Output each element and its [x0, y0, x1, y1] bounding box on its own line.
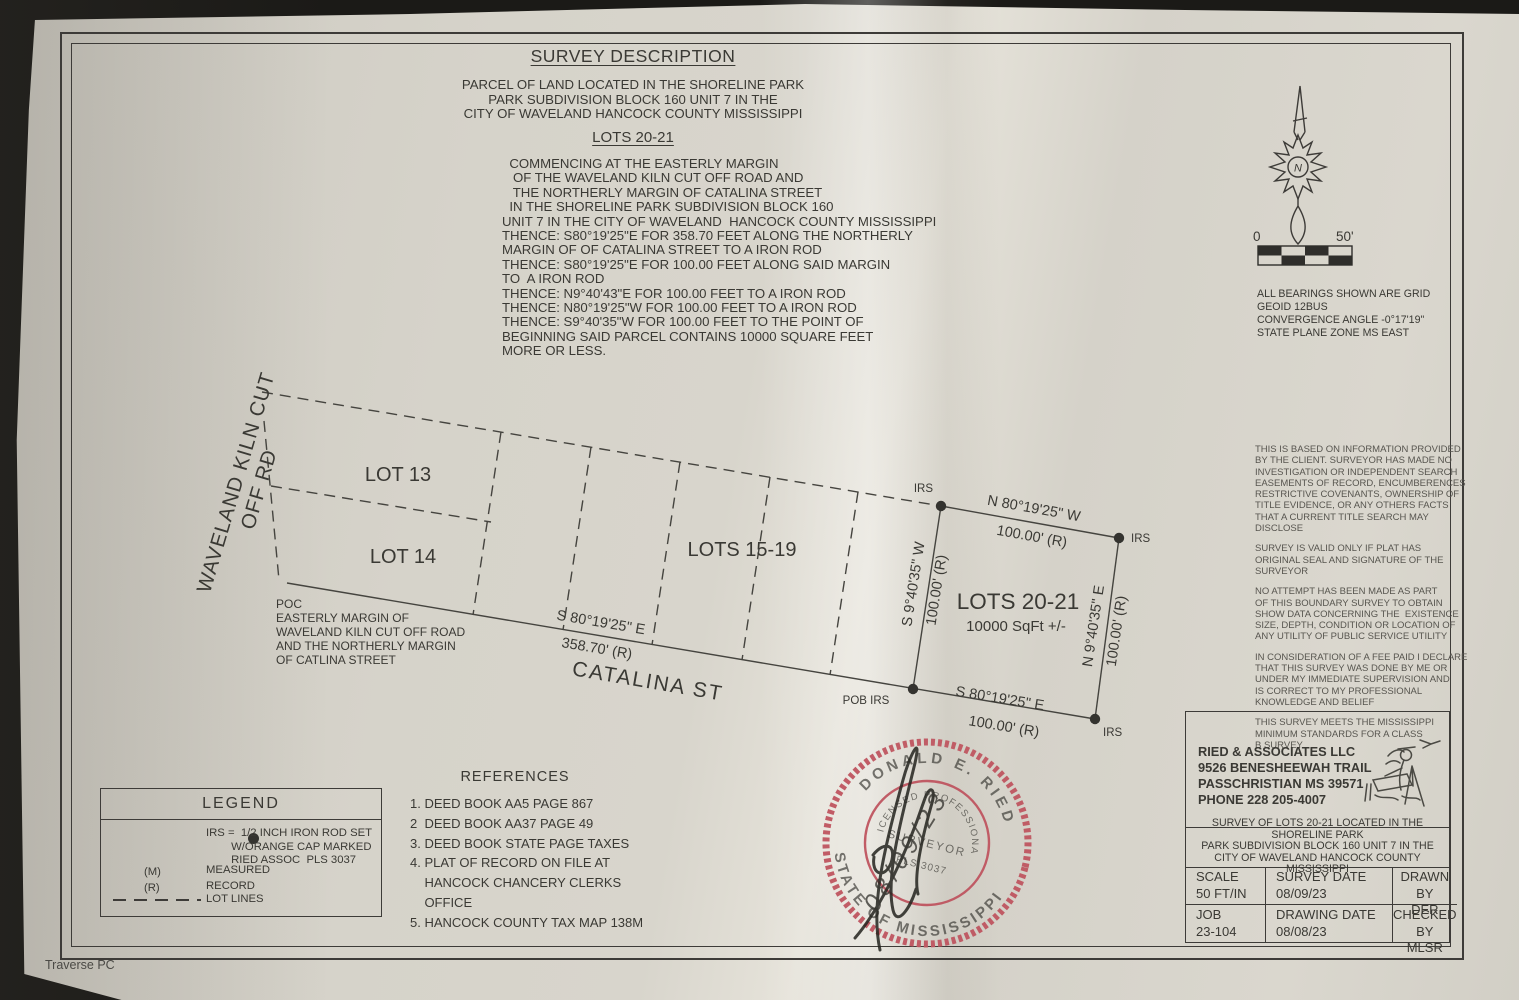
lot13-label: LOT 13 — [365, 464, 431, 486]
drawn-by-label: DRAWN BY — [1393, 869, 1457, 902]
checked-by-value: MLSR — [1393, 940, 1457, 957]
legend-box: LEGEND IRS = 1/2 INCH IRON ROD SET W/ORA… — [100, 788, 382, 917]
surveyor-doodle-logo — [1358, 734, 1444, 816]
reference-item: 1. DEED BOOK AA5 PAGE 867 — [410, 794, 643, 814]
lot-line-2 — [563, 447, 591, 630]
irs-marker-nw — [936, 501, 946, 511]
checked-by-label: CHECKED BY — [1393, 907, 1457, 940]
note-paragraph: IN CONSIDERATION OF A FEE PAID I DECLARE… — [1255, 652, 1433, 708]
scale-value: 50 FT/IN — [1196, 886, 1265, 903]
survey-date-cell: SURVEY DATE 08/09/23 — [1266, 867, 1393, 905]
legend-irs-text: IRS = 1/2 INCH IRON ROD SET W/ORANGE CAP… — [206, 827, 372, 868]
drawn-by-cell: DRAWN BY DER — [1393, 867, 1457, 905]
scale-bar-fifty: 50' — [1336, 229, 1354, 244]
note-paragraph: SURVEY IS VALID ONLY IF PLAT HAS ORIGINA… — [1255, 543, 1433, 577]
parcel-east-distance: 100.00' (R) — [1104, 595, 1130, 668]
survey-date-label: SURVEY DATE — [1276, 869, 1392, 886]
scale-bar-zero: 0 — [1253, 229, 1261, 244]
grid-bearings-note: ALL BEARINGS SHOWN ARE GRID GEOID 12BUS … — [1257, 288, 1430, 340]
lot-lines-symbol — [113, 899, 201, 901]
job-label: JOB — [1196, 907, 1265, 924]
irs-marker-se — [1090, 714, 1100, 724]
irs-label-se: IRS — [1103, 727, 1123, 739]
lot-line-5 — [830, 492, 858, 675]
job-cell: JOB 23-104 — [1186, 905, 1266, 942]
legend-mr-symbols: (M) (R) — [144, 865, 161, 896]
traverse-pc-label: Traverse PC — [45, 958, 115, 972]
note-paragraph: NO ATTEMPT HAS BEEN MADE AS PART OF THIS… — [1255, 586, 1433, 642]
north-arrow-n: N — [1294, 163, 1302, 175]
title-block: RIED & ASSOCIATES LLC 9526 BENESHEEWAH T… — [1185, 711, 1450, 943]
reference-item: 5. HANCOCK COUNTY TAX MAP 138M — [410, 913, 643, 933]
drawing-date-cell: DRAWING DATE 08/08/23 — [1266, 905, 1393, 942]
scanned-survey-plat: { "colors": {"ink": "#3a3934", "seal_red… — [0, 0, 1519, 1000]
scale-cell: SCALE 50 FT/IN — [1186, 867, 1266, 905]
irs-marker-ne — [1114, 533, 1124, 543]
parcel-area-label: 10000 SqFt +/- — [966, 618, 1066, 635]
lot-line-3 — [652, 462, 680, 645]
legend-title: LEGEND — [101, 789, 381, 820]
catalina-bearing: S 80°19'25" E — [555, 608, 646, 639]
references-title: REFERENCES — [430, 769, 600, 785]
lots15-19-label: LOTS 15-19 — [688, 539, 797, 561]
title-block-grid: SCALE 50 FT/IN SURVEY DATE 08/09/23 DRAW… — [1186, 867, 1449, 942]
legend-lot-lines-label: LOT LINES — [206, 893, 264, 905]
references-list: 1. DEED BOOK AA5 PAGE 867 2 DEED BOOK AA… — [410, 794, 643, 933]
north-boundary-dashed — [262, 392, 941, 506]
lot-line-4 — [742, 477, 770, 660]
legend-mr-values: MEASURED RECORD — [206, 863, 270, 894]
drawing-date-value: 08/08/23 — [1276, 924, 1392, 941]
checked-by-cell: CHECKED BY MLSR — [1393, 905, 1457, 942]
reference-item: 4. PLAT OF RECORD ON FILE AT HANCOCK CHA… — [410, 853, 643, 912]
job-value: 23-104 — [1196, 924, 1265, 941]
lot13-14-divider — [271, 486, 491, 522]
reference-item: 2 DEED BOOK AA37 PAGE 49 — [410, 814, 643, 834]
lot-line-1 — [473, 432, 501, 615]
irs-label-ne: IRS — [1131, 533, 1151, 545]
survey-date-value: 08/09/23 — [1276, 886, 1392, 903]
firm-address1: 9526 BENESHEEWAH TRAIL — [1198, 760, 1372, 776]
catalina-street-label: CATALINA ST — [571, 657, 726, 705]
firm-address2: PASSCHRISTIAN MS 39571 — [1198, 776, 1372, 792]
firm-info: RIED & ASSOCIATES LLC 9526 BENESHEEWAH T… — [1198, 744, 1372, 808]
lots20-21-label: LOTS 20-21 — [957, 589, 1080, 614]
irs-label-nw: IRS — [914, 483, 934, 495]
surveyor-notes: THIS IS BASED ON INFORMATION PROVIDED BY… — [1255, 444, 1433, 751]
surveyor-seal: DONALD E. RIED STATE OF MISSISSIPPI LICE… — [785, 705, 1075, 975]
drawing-date-label: DRAWING DATE — [1276, 907, 1392, 924]
scale-label: SCALE — [1196, 869, 1265, 886]
reference-item: 3. DEED BOOK STATE PAGE TAXES — [410, 834, 643, 854]
parcel-north-bearing: N 80°19'25" W — [986, 493, 1082, 526]
irs-marker-pob — [908, 684, 918, 694]
poc-note: POC EASTERLY MARGIN OF WAVELAND KILN CUT… — [276, 597, 465, 667]
note-paragraph: THIS IS BASED ON INFORMATION PROVIDED BY… — [1255, 444, 1433, 534]
firm-name: RIED & ASSOCIATES LLC — [1198, 744, 1372, 760]
firm-phone: PHONE 228 205-4007 — [1198, 792, 1372, 808]
lot14-label: LOT 14 — [370, 546, 436, 568]
title-block-firm-section: RIED & ASSOCIATES LLC 9526 BENESHEEWAH T… — [1186, 712, 1449, 828]
title-block-survey-title: SURVEY OF LOTS 20-21 LOCATED IN THE SHOR… — [1186, 827, 1449, 868]
